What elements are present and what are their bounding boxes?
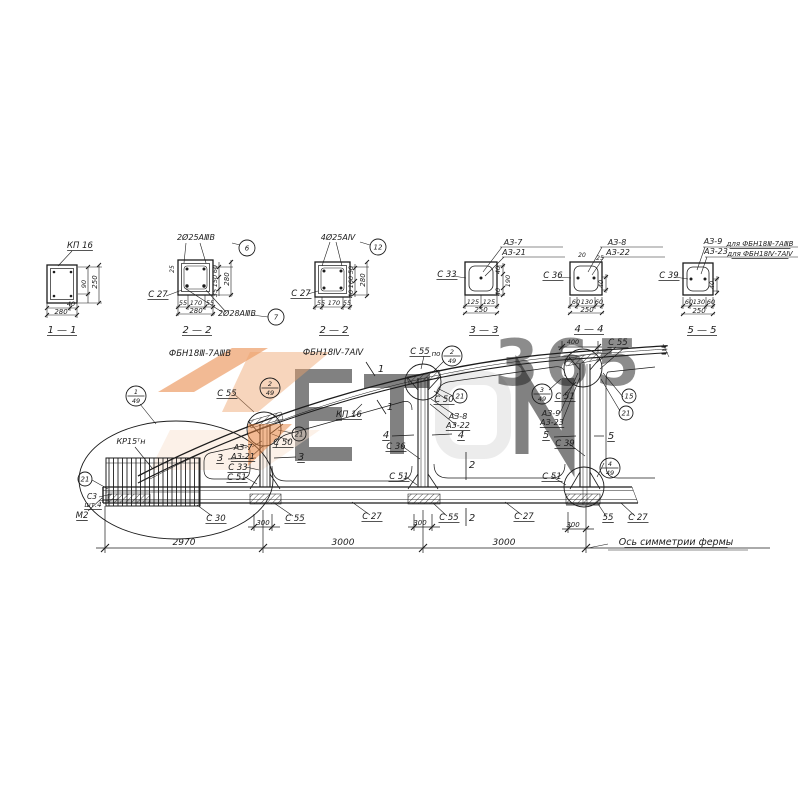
section-label: 40 [597, 280, 605, 288]
elevation-label: 4 [458, 430, 464, 441]
reference-bubble-label: 49 [448, 357, 456, 365]
reference-bubble-label: 49 [132, 397, 140, 405]
elevation-label: 2 [469, 513, 475, 524]
elevation-label: КР15ᵀн [117, 437, 146, 446]
section-3-3 [465, 262, 497, 295]
section-label: 130 [693, 298, 705, 306]
section-label: 55 [206, 299, 214, 307]
elevation-label: С 27 [362, 512, 382, 522]
elevation-label: 5 [543, 430, 549, 441]
reference-bubble-label: 3 [540, 386, 544, 394]
section-label: 60 [211, 265, 219, 273]
elevation-label: 300 [256, 519, 270, 527]
elevation-label: 3 [298, 452, 304, 463]
elevation-label: С 51 [227, 473, 246, 483]
section-label: АЗ-8 [607, 238, 627, 247]
reference-bubble-label: 4 [608, 460, 612, 468]
elevation-label: 2 [469, 460, 475, 471]
reference-bubble-label: 2 [450, 348, 454, 356]
elevation-label: АЗ-7 [233, 443, 253, 452]
section-label: С 27 [291, 289, 311, 299]
section-label: 170 [328, 299, 340, 307]
elevation-label: 55 [603, 513, 614, 523]
reference-bubble-label: 15 [625, 393, 634, 401]
section-label: 60 [572, 298, 580, 306]
elevation-label: 3 [217, 453, 223, 464]
section-label: 3 — 3 [469, 325, 498, 336]
elevation-label: С 55 [439, 513, 458, 523]
elevation-label: 2970 [173, 538, 196, 548]
elevation-label: С 51 [389, 472, 408, 482]
elevation-label: 5 [608, 431, 614, 442]
reference-bubble-label: 7 [274, 314, 279, 322]
section-label: 125 [483, 298, 495, 306]
section-label: КП 16 [67, 241, 94, 251]
elevation-label: шт.4 [84, 501, 101, 509]
section-label: С 36 [543, 271, 563, 281]
elevation-label: С 51 [555, 392, 574, 402]
section-label: 250 [692, 307, 706, 315]
section-label: АЗ-9 [703, 237, 723, 246]
reference-bubble-label: 21 [622, 410, 631, 418]
section-label: 55 [343, 299, 351, 307]
elevation-label: С 27 [514, 512, 534, 522]
section-label: 1 — 1 [47, 325, 76, 336]
elevation-label: С 51 [542, 472, 561, 482]
reference-bubble-label: 12 [374, 244, 383, 252]
elevation-label: С 30 [206, 514, 225, 524]
section-label: 2Ø25АⅢВ [177, 232, 215, 242]
section-label: 125 [467, 298, 479, 306]
section-dim-ticks [45, 260, 719, 317]
reference-bubble-label: 6 [245, 245, 250, 253]
elevation-label: С 55 [608, 338, 627, 348]
section-label: 35 [211, 289, 219, 297]
truss-drawing-sheet: 365 КП 1690250402801 — 12Ø25АⅢВС 272Ø28А… [0, 0, 800, 800]
elevation-label: С 55 [410, 347, 429, 357]
reference-bubble-label: 21 [456, 393, 465, 401]
section-label: 280 [223, 272, 231, 286]
section-label: АЗ-22 [605, 248, 630, 257]
section-label: 160 [347, 276, 355, 288]
section-label: 4Ø25АⅣ [321, 232, 356, 242]
reference-bubble-label: 49 [606, 469, 614, 477]
section-label: С 33 [437, 270, 456, 280]
elevation-label: АЗ-9 [541, 409, 561, 418]
reference-bubble-label: 21 [295, 431, 304, 439]
elevation-label: С 36 [386, 442, 406, 452]
elevation-label: 1 [378, 364, 384, 375]
section-label: 250 [91, 275, 99, 289]
reference-bubble-label: 2 [268, 380, 272, 388]
elevation-label: С 50 [434, 395, 453, 405]
elevation-label: 4 [383, 430, 389, 441]
section-label: 25 [596, 255, 604, 262]
elevation-label: по [432, 350, 441, 358]
section-label: 40 [67, 300, 75, 308]
post-2 [407, 377, 439, 489]
elevation-label: 1 [387, 402, 393, 413]
section-label: С 39 [659, 271, 678, 281]
section-label: АЗ-21 [501, 248, 526, 257]
section-label: 90 [80, 280, 88, 288]
drawing-canvas: 365 КП 1690250402801 — 12Ø25АⅢВС 272Ø28А… [0, 0, 800, 800]
section-label: 280 [54, 308, 68, 316]
section-label: ФБН18Ⅲ-7АⅢВ [169, 349, 231, 359]
section-2-2b [315, 262, 350, 297]
section-1-1 [47, 265, 77, 303]
section-label: 4 — 4 [574, 324, 603, 335]
section-label: 60 [595, 298, 603, 306]
elevation-label: С 55 [217, 389, 236, 399]
section-label: ФБН18Ⅳ-7АⅣ [303, 348, 364, 358]
section-label: 190 [504, 275, 512, 287]
section-label: 40 [494, 288, 502, 296]
section-label: АЗ-23 [703, 247, 728, 256]
section-dim-lines [47, 260, 719, 318]
section-label: 280 [359, 273, 367, 287]
elevation-label: С 33 [228, 463, 247, 473]
section-labels-group: КП 1690250402801 — 12Ø25АⅢВС 272Ø28АⅢВ55… [47, 232, 794, 359]
section-label: 40 [708, 281, 716, 289]
elevation-label: АЗ-23 [539, 418, 564, 427]
elevation-label: 3000 [332, 538, 355, 548]
section-label: для ФБН18Ⅳ-7АⅣ [726, 250, 793, 258]
section-label: 2Ø28АⅢВ [218, 308, 256, 318]
reference-bubble-label: 21 [81, 476, 90, 484]
section-label: 2 — 2 [182, 325, 211, 336]
section-label: 55 [179, 299, 187, 307]
section-label: для ФБН18Ⅲ-7АⅢВ [726, 240, 794, 248]
section-label: 170 [190, 299, 202, 307]
section-label: 250 [474, 306, 488, 314]
elevation-label: КП 16 [336, 410, 363, 420]
reference-bubble-label: 1 [134, 388, 138, 396]
section-label: 280 [189, 307, 203, 315]
section-label: 250 [580, 306, 594, 314]
elevation-label: Ось симметрии фермы [619, 537, 734, 548]
section-label: 40 [494, 266, 502, 274]
elevation-label: С 55 [285, 514, 304, 524]
section-label: 25 [169, 265, 176, 273]
elevation-label: 3000 [493, 538, 516, 548]
section-label: 60 [707, 298, 715, 306]
section-label: 130 [581, 298, 593, 306]
elevation-label: М2 [76, 511, 89, 521]
elevation-label: С 27 [628, 513, 648, 523]
elevation-label: С3 [87, 492, 97, 501]
section-label: 55 [317, 299, 325, 307]
section-label: С 27 [148, 290, 168, 300]
section-label: 5 — 5 [687, 325, 716, 336]
section-label: 40 [347, 290, 355, 298]
section-label: 150 [211, 275, 219, 287]
elevation-label: 300 [413, 519, 427, 527]
reference-bubble-label: 49 [266, 389, 274, 397]
elevation-label: АЗ-21 [230, 452, 255, 461]
section-label: АЗ-7 [503, 238, 523, 247]
section-label: 50 [347, 266, 355, 274]
section-2-2a [178, 260, 213, 295]
elevation-label: АЗ-22 [445, 421, 470, 430]
section-label: 20 [578, 252, 586, 259]
elevation-label: АЗ-8 [448, 412, 468, 421]
elevation-label: С 50 [273, 438, 292, 448]
elevation-label: 400 [567, 338, 579, 346]
section-label: 2 — 2 [319, 325, 348, 336]
reference-bubble-label: 49 [538, 395, 546, 403]
elevation-label: 300 [566, 521, 580, 529]
elevation-label: С 39 [555, 439, 574, 449]
